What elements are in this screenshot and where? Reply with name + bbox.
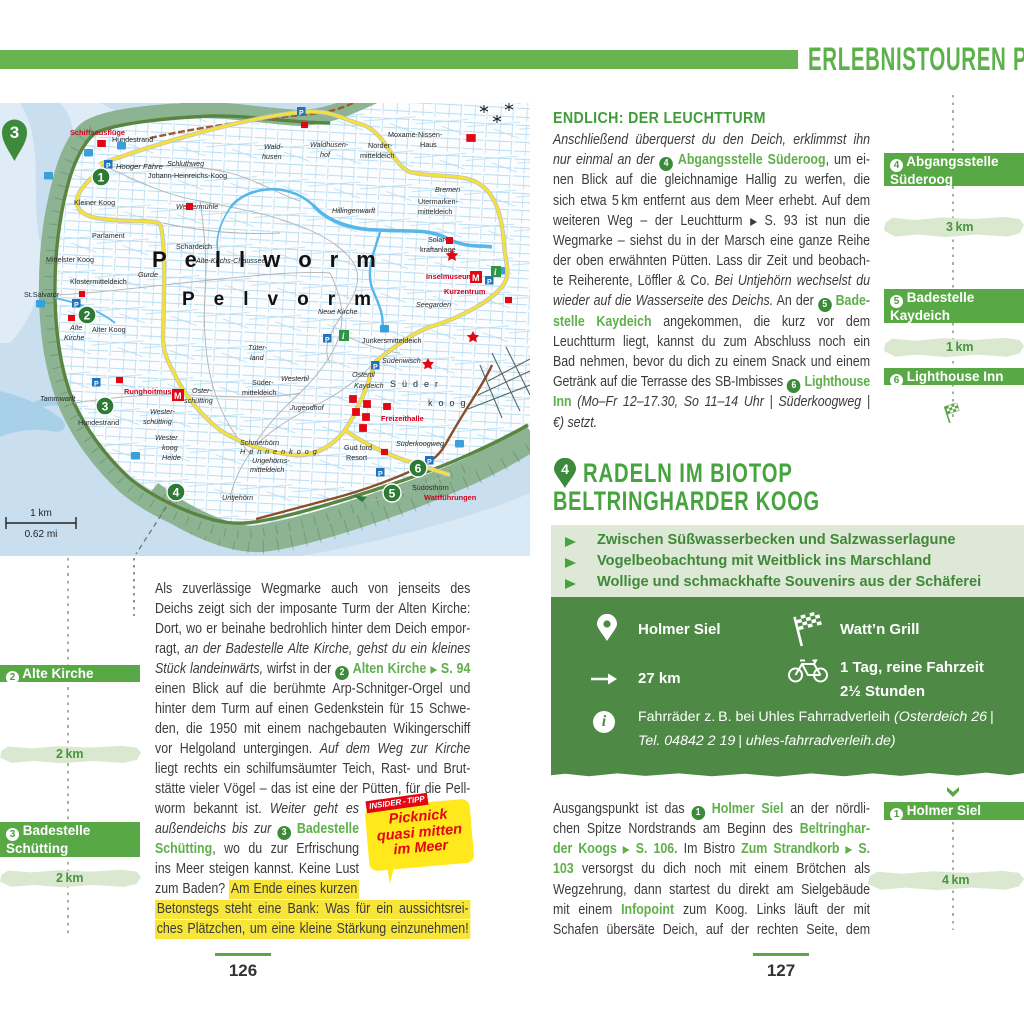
svg-text:St.Salvator: St.Salvator [24, 290, 60, 299]
svg-text:Haus: Haus [420, 140, 437, 149]
svg-text:Westermühle: Westermühle [176, 202, 218, 211]
svg-text:Kaydeich: Kaydeich [354, 381, 384, 390]
svg-text:Jugendhof: Jugendhof [289, 403, 325, 412]
svg-text:Kurzentrum: Kurzentrum [444, 287, 486, 296]
svg-text:Kleiner Koog: Kleiner Koog [74, 198, 115, 207]
svg-text:Schluthweg: Schluthweg [167, 159, 204, 168]
svg-text:Pellworm: Pellworm [152, 247, 394, 272]
svg-text:koog: koog [162, 443, 178, 452]
svg-text:P: P [106, 163, 111, 170]
svg-text:P: P [427, 459, 432, 466]
svg-text:Parlament: Parlament [92, 231, 125, 240]
svg-text:M: M [472, 273, 480, 283]
svg-text:Alte: Alte [69, 323, 82, 332]
svg-text:P: P [94, 381, 99, 388]
svg-text:5: 5 [389, 487, 396, 501]
svg-text:Wester: Wester [155, 433, 178, 442]
svg-text:Pelvorm: Pelvorm [182, 289, 390, 310]
svg-text:Süderkoogweg: Süderkoogweg [396, 439, 444, 448]
svg-text:Ostertil: Ostertil [352, 370, 375, 379]
svg-text:Junkersmitteldeich: Junkersmitteldeich [362, 336, 422, 345]
svg-text:Tüter-: Tüter- [248, 343, 268, 352]
svg-text:schütting: schütting [143, 417, 172, 426]
svg-text:koog: koog [428, 398, 472, 408]
svg-text:Oster-: Oster- [192, 386, 212, 395]
svg-text:Süder: Süder [390, 379, 444, 389]
svg-text:Runghoitmus.: Runghoitmus. [124, 387, 174, 396]
svg-text:Waldhusen-: Waldhusen- [310, 140, 349, 149]
svg-text:Alter Koog: Alter Koog [92, 325, 126, 334]
svg-text:Süder-: Süder- [252, 378, 274, 387]
svg-text:hof: hof [320, 150, 331, 159]
svg-text:6: 6 [415, 462, 422, 476]
svg-text:Untjehörn: Untjehörn [222, 493, 253, 502]
svg-text:Tammwarft: Tammwarft [40, 394, 76, 403]
svg-text:P: P [373, 364, 378, 371]
svg-text:Wester-: Wester- [150, 407, 176, 416]
svg-text:Südosthörn: Südosthörn [412, 483, 449, 492]
svg-text:Hundestrand: Hundestrand [78, 418, 119, 427]
svg-text:mitteldeich: mitteldeich [360, 151, 394, 160]
svg-text:Norder-: Norder- [368, 141, 393, 150]
svg-text:P: P [378, 471, 383, 478]
svg-text:Inselmuseum: Inselmuseum [426, 272, 474, 281]
svg-text:husen: husen [262, 152, 282, 161]
svg-text:Mittelster Koog: Mittelster Koog [46, 255, 94, 264]
svg-text:P: P [299, 110, 304, 117]
svg-text:Moxame-Nissen-: Moxame-Nissen- [388, 130, 443, 139]
svg-text:schütting: schütting [184, 396, 213, 405]
svg-text:Westertil: Westertil [281, 374, 309, 383]
svg-text:Bremen: Bremen [435, 185, 460, 194]
svg-text:3: 3 [102, 400, 109, 414]
svg-text:Südenwisch: Südenwisch [382, 356, 421, 365]
svg-text:0.62 mi: 0.62 mi [25, 529, 58, 540]
svg-text:Ungehörns-: Ungehörns- [252, 456, 290, 465]
svg-text:Heide: Heide [162, 453, 181, 462]
svg-text:P: P [487, 279, 492, 286]
svg-text:P: P [74, 302, 79, 309]
svg-text:Solar-: Solar- [428, 235, 448, 244]
svg-text:M: M [174, 391, 182, 401]
svg-text:mitteldeich: mitteldeich [242, 388, 276, 397]
svg-text:mitteldeich: mitteldeich [418, 207, 452, 216]
svg-text:Schiffsausflüge: Schiffsausflüge [70, 128, 125, 137]
svg-text:mitteldeich: mitteldeich [250, 465, 284, 474]
svg-text:2: 2 [84, 309, 91, 323]
svg-text:Hillingenwarft: Hillingenwarft [332, 206, 376, 215]
svg-text:Klostermitteldeich: Klostermitteldeich [70, 277, 127, 286]
svg-text:Schmerhörn: Schmerhörn [240, 438, 279, 447]
svg-text:3: 3 [10, 123, 19, 142]
svg-text:Johann-Heinreichs-Koog: Johann-Heinreichs-Koog [148, 171, 227, 180]
svg-text:Utermarken-: Utermarken- [418, 197, 459, 206]
svg-text:P: P [325, 337, 330, 344]
svg-text:Freizeithalle: Freizeithalle [381, 414, 424, 423]
svg-text:4: 4 [561, 461, 569, 477]
svg-text:Gud ford: Gud ford [344, 443, 372, 452]
svg-text:Wattführungen: Wattführungen [424, 493, 477, 502]
svg-text:Seegarden: Seegarden [416, 300, 451, 309]
svg-text:Wald-: Wald- [264, 142, 283, 151]
svg-text:Hooger Fähre: Hooger Fähre [116, 162, 163, 171]
svg-text:1: 1 [98, 171, 105, 185]
svg-text:land: land [250, 353, 265, 362]
svg-text:Hunnenkoog: Hunnenkoog [240, 447, 321, 456]
svg-text:Resort: Resort [346, 453, 367, 462]
svg-text:4: 4 [173, 486, 180, 500]
svg-text:1 km: 1 km [30, 508, 52, 519]
svg-text:Kirche: Kirche [64, 333, 84, 342]
